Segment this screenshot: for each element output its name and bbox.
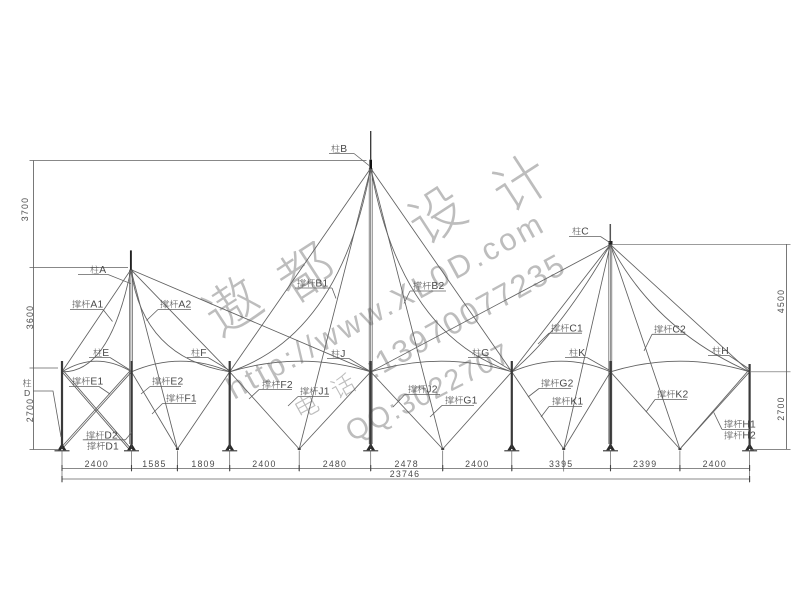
svg-text:3600: 3600 (25, 305, 35, 329)
svg-text:E1: E1 (90, 377, 103, 388)
svg-text:G2: G2 (559, 379, 573, 390)
svg-text:J1: J1 (318, 387, 329, 398)
svg-text:D1: D1 (105, 441, 119, 452)
svg-text:2399: 2399 (633, 459, 657, 469)
svg-text:C: C (581, 227, 589, 238)
svg-text:2700: 2700 (776, 396, 786, 420)
svg-text:2478: 2478 (395, 459, 419, 469)
svg-text:H1: H1 (742, 419, 756, 430)
svg-text:A1: A1 (90, 300, 103, 311)
svg-text:2480: 2480 (323, 459, 347, 469)
svg-text:1585: 1585 (142, 459, 166, 469)
svg-text:2400: 2400 (465, 459, 489, 469)
svg-text:2400: 2400 (85, 459, 109, 469)
svg-text:A2: A2 (178, 300, 191, 311)
svg-text:K2: K2 (675, 390, 688, 401)
svg-text:23746: 23746 (390, 469, 420, 479)
svg-text:2400: 2400 (252, 459, 276, 469)
svg-text:K1: K1 (570, 397, 583, 408)
svg-text:E2: E2 (170, 377, 183, 388)
svg-text:2400: 2400 (703, 459, 727, 469)
svg-text:D: D (24, 388, 30, 398)
svg-text:1809: 1809 (191, 459, 215, 469)
svg-text:C2: C2 (672, 325, 686, 336)
svg-text:G1: G1 (463, 396, 477, 407)
svg-text:2700: 2700 (25, 398, 35, 422)
svg-text:3700: 3700 (20, 197, 30, 221)
svg-text:3395: 3395 (549, 459, 573, 469)
svg-text:H2: H2 (742, 431, 756, 442)
svg-text:B2: B2 (431, 281, 444, 292)
svg-text:F1: F1 (184, 394, 196, 405)
svg-text:J2: J2 (426, 385, 437, 396)
svg-text:4500: 4500 (776, 289, 786, 313)
